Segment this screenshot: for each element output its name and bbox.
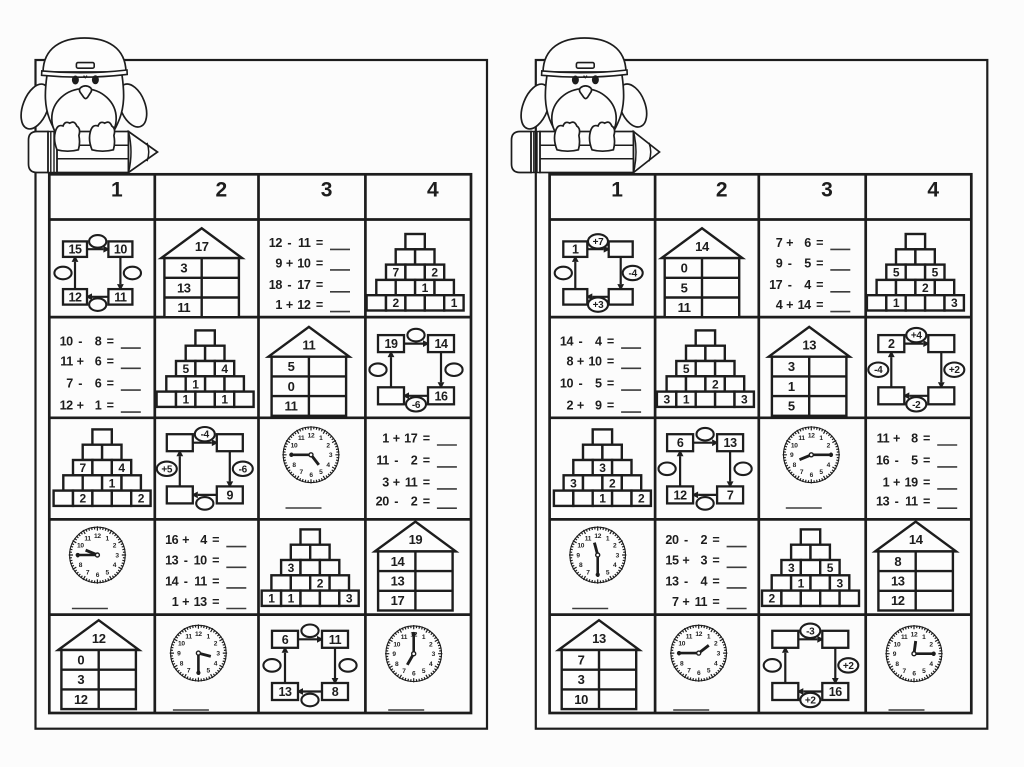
svg-text:11: 11 <box>177 300 190 315</box>
svg-text:-4: -4 <box>629 269 638 280</box>
svg-text:-: - <box>684 574 688 588</box>
svg-text:10: 10 <box>574 692 588 707</box>
svg-text:1: 1 <box>382 431 389 445</box>
svg-text:5: 5 <box>681 280 688 295</box>
svg-text:1: 1 <box>172 595 179 609</box>
svg-text:+: + <box>182 533 189 547</box>
svg-text:12: 12 <box>594 533 601 540</box>
svg-text:10: 10 <box>194 554 208 568</box>
svg-text:12: 12 <box>74 692 88 707</box>
svg-text:=: = <box>423 475 430 489</box>
svg-text:5: 5 <box>595 377 602 391</box>
svg-text:19: 19 <box>409 532 423 547</box>
svg-text:14: 14 <box>798 298 812 312</box>
svg-text:12: 12 <box>308 433 315 440</box>
svg-text:10: 10 <box>560 377 574 391</box>
svg-text:-6: -6 <box>239 464 248 475</box>
svg-text:2: 2 <box>700 533 707 547</box>
svg-text:5: 5 <box>683 362 690 376</box>
svg-text:11: 11 <box>285 399 298 414</box>
svg-text:2: 2 <box>716 179 728 202</box>
svg-text:2: 2 <box>888 337 895 351</box>
svg-text:=: = <box>107 355 114 369</box>
svg-text:-6: -6 <box>412 400 421 411</box>
svg-text:-: - <box>78 335 82 349</box>
svg-text:+2: +2 <box>843 661 855 672</box>
svg-text:10: 10 <box>894 641 901 648</box>
svg-text:14: 14 <box>434 337 448 351</box>
svg-text:10: 10 <box>291 442 298 449</box>
svg-text:-: - <box>895 495 899 509</box>
svg-text:1: 1 <box>611 179 623 202</box>
svg-text:6: 6 <box>804 236 811 250</box>
svg-text:11: 11 <box>376 453 389 467</box>
svg-text:=: = <box>423 453 430 467</box>
svg-text:5: 5 <box>183 362 190 376</box>
svg-text:4: 4 <box>804 278 811 292</box>
svg-text:+: + <box>577 355 584 369</box>
svg-text:4: 4 <box>776 298 783 312</box>
svg-text:=: = <box>423 495 430 509</box>
svg-text:3: 3 <box>382 475 389 489</box>
svg-text:=: = <box>712 595 719 609</box>
svg-text:6: 6 <box>282 633 289 647</box>
svg-text:1: 1 <box>572 243 579 257</box>
svg-text:13: 13 <box>165 554 179 568</box>
svg-text:11: 11 <box>877 431 890 445</box>
svg-text:1: 1 <box>883 475 890 489</box>
svg-text:1: 1 <box>268 592 275 606</box>
svg-text:=: = <box>316 278 323 292</box>
svg-text:17: 17 <box>404 431 418 445</box>
svg-text:+: + <box>893 475 900 489</box>
svg-text:=: = <box>212 595 219 609</box>
svg-text:6: 6 <box>95 355 102 369</box>
svg-text:-: - <box>684 533 688 547</box>
svg-text:11: 11 <box>405 475 418 489</box>
svg-text:=: = <box>316 298 323 312</box>
svg-text:3: 3 <box>836 576 843 590</box>
svg-text:=: = <box>712 574 719 588</box>
svg-text:3: 3 <box>77 672 84 687</box>
svg-text:=: = <box>607 355 614 369</box>
svg-text:-: - <box>287 236 291 250</box>
svg-text:2: 2 <box>566 399 573 413</box>
svg-text:3: 3 <box>288 561 295 575</box>
svg-text:2: 2 <box>922 281 929 295</box>
svg-text:+: + <box>682 554 689 568</box>
svg-text:=: = <box>816 298 823 312</box>
svg-text:13: 13 <box>592 631 606 646</box>
svg-text:-: - <box>287 278 291 292</box>
svg-text:+: + <box>786 236 793 250</box>
svg-text:14: 14 <box>909 532 924 547</box>
svg-text:10: 10 <box>114 243 128 257</box>
svg-text:+: + <box>893 431 900 445</box>
svg-text:6: 6 <box>95 377 102 391</box>
svg-text:16: 16 <box>829 685 843 699</box>
svg-text:0: 0 <box>77 653 84 668</box>
svg-text:1: 1 <box>893 296 900 310</box>
svg-text:=: = <box>816 256 823 270</box>
svg-text:11: 11 <box>695 595 708 609</box>
svg-text:16: 16 <box>165 533 179 547</box>
svg-text:16: 16 <box>434 389 448 403</box>
svg-text:1: 1 <box>275 298 282 312</box>
svg-text:=: = <box>316 256 323 270</box>
svg-text:3: 3 <box>741 393 748 407</box>
svg-text:11: 11 <box>905 495 918 509</box>
svg-text:4: 4 <box>927 179 939 202</box>
svg-text:2: 2 <box>769 592 776 606</box>
svg-text:=: = <box>212 574 219 588</box>
svg-text:17: 17 <box>297 278 311 292</box>
svg-text:14: 14 <box>391 554 406 569</box>
svg-text:-: - <box>579 335 583 349</box>
svg-text:2: 2 <box>393 296 400 310</box>
svg-text:+: + <box>182 595 189 609</box>
svg-text:10: 10 <box>577 543 584 550</box>
svg-text:2: 2 <box>411 453 418 467</box>
svg-text:-: - <box>895 453 899 467</box>
svg-text:2: 2 <box>80 492 87 506</box>
svg-text:7: 7 <box>727 488 734 502</box>
svg-text:3: 3 <box>700 554 707 568</box>
svg-text:+2: +2 <box>805 696 817 707</box>
svg-text:11: 11 <box>114 290 127 304</box>
svg-text:2: 2 <box>411 495 418 509</box>
svg-text:7: 7 <box>672 595 679 609</box>
svg-text:8: 8 <box>332 685 339 699</box>
svg-text:=: = <box>607 335 614 349</box>
svg-text:12: 12 <box>695 631 702 638</box>
svg-text:0: 0 <box>288 379 295 394</box>
svg-text:5: 5 <box>932 266 939 280</box>
svg-text:9: 9 <box>776 256 783 270</box>
svg-text:12: 12 <box>68 290 82 304</box>
svg-text:14: 14 <box>165 574 179 588</box>
svg-text:1: 1 <box>192 377 199 391</box>
svg-text:11: 11 <box>302 338 315 353</box>
svg-text:11: 11 <box>585 535 592 542</box>
svg-text:10: 10 <box>678 641 685 648</box>
svg-text:5: 5 <box>827 561 834 575</box>
svg-text:13: 13 <box>391 574 405 589</box>
svg-text:=: = <box>107 335 114 349</box>
svg-text:7: 7 <box>578 653 585 668</box>
svg-text:7: 7 <box>776 236 783 250</box>
svg-text:14: 14 <box>560 335 574 349</box>
svg-text:9: 9 <box>275 256 282 270</box>
svg-text:1: 1 <box>798 576 805 590</box>
svg-text:8: 8 <box>566 355 573 369</box>
svg-text:4: 4 <box>700 574 707 588</box>
svg-text:+2: +2 <box>949 365 961 376</box>
svg-text:2: 2 <box>638 492 645 506</box>
svg-text:11: 11 <box>60 355 73 369</box>
svg-text:10: 10 <box>77 543 84 550</box>
svg-text:3: 3 <box>663 393 670 407</box>
svg-text:1: 1 <box>788 379 795 394</box>
svg-text:2: 2 <box>317 576 324 590</box>
svg-text:-: - <box>579 377 583 391</box>
svg-text:14: 14 <box>695 239 710 254</box>
svg-text:11: 11 <box>401 634 408 641</box>
svg-text:3: 3 <box>578 672 585 687</box>
svg-text:13: 13 <box>724 436 738 450</box>
svg-text:13: 13 <box>194 595 208 609</box>
svg-text:=: = <box>212 533 219 547</box>
svg-text:+: + <box>286 298 293 312</box>
svg-text:10: 10 <box>178 641 185 648</box>
svg-text:4: 4 <box>118 461 125 475</box>
svg-text:19: 19 <box>384 337 398 351</box>
svg-text:10: 10 <box>588 355 602 369</box>
svg-text:11: 11 <box>84 535 91 542</box>
svg-text:1: 1 <box>109 476 116 490</box>
svg-text:5: 5 <box>788 399 795 414</box>
svg-text:3: 3 <box>951 296 958 310</box>
svg-text:6: 6 <box>677 436 684 450</box>
svg-text:5: 5 <box>804 256 811 270</box>
svg-text:4: 4 <box>200 533 207 547</box>
svg-text:12: 12 <box>911 632 918 639</box>
svg-text:+5: +5 <box>161 464 173 475</box>
svg-text:4: 4 <box>595 335 602 349</box>
svg-text:5: 5 <box>911 453 918 467</box>
svg-text:+: + <box>77 355 84 369</box>
svg-text:12: 12 <box>808 433 815 440</box>
svg-text:-: - <box>78 377 82 391</box>
svg-text:+4: +4 <box>911 331 923 342</box>
svg-text:+: + <box>786 298 793 312</box>
svg-text:19: 19 <box>904 475 918 489</box>
svg-text:20: 20 <box>376 495 390 509</box>
svg-text:=: = <box>923 453 930 467</box>
svg-text:+: + <box>577 399 584 413</box>
svg-text:3: 3 <box>346 592 353 606</box>
svg-text:7: 7 <box>80 461 87 475</box>
svg-text:7: 7 <box>393 266 400 280</box>
svg-text:15: 15 <box>665 554 679 568</box>
svg-text:2: 2 <box>609 476 616 490</box>
svg-text:9: 9 <box>227 488 234 502</box>
svg-text:=: = <box>107 399 114 413</box>
svg-text:8: 8 <box>894 554 901 569</box>
svg-text:1: 1 <box>599 492 606 506</box>
svg-text:3: 3 <box>570 476 577 490</box>
svg-text:11: 11 <box>185 634 192 641</box>
svg-text:=: = <box>107 377 114 391</box>
svg-text:+7: +7 <box>593 237 605 248</box>
svg-text:=: = <box>607 377 614 391</box>
svg-text:9: 9 <box>595 399 602 413</box>
svg-text:=: = <box>712 533 719 547</box>
svg-text:5: 5 <box>893 266 900 280</box>
svg-text:1: 1 <box>95 399 102 413</box>
svg-text:-4: -4 <box>201 430 210 441</box>
svg-text:1: 1 <box>221 393 228 407</box>
svg-text:-: - <box>788 256 792 270</box>
svg-text:13: 13 <box>665 574 679 588</box>
svg-text:8: 8 <box>95 335 102 349</box>
svg-text:12: 12 <box>195 631 202 638</box>
svg-text:+3: +3 <box>593 300 605 311</box>
svg-text:3: 3 <box>321 179 333 202</box>
svg-text:1: 1 <box>451 296 458 310</box>
svg-text:1: 1 <box>111 179 123 202</box>
svg-text:-: - <box>394 453 398 467</box>
svg-text:+: + <box>286 256 293 270</box>
svg-text:12: 12 <box>60 399 74 413</box>
svg-text:11: 11 <box>901 634 908 641</box>
svg-text:20: 20 <box>665 533 679 547</box>
svg-text:-: - <box>788 278 792 292</box>
svg-text:18: 18 <box>269 278 283 292</box>
svg-text:13: 13 <box>278 685 292 699</box>
svg-text:8: 8 <box>911 431 918 445</box>
svg-text:12: 12 <box>94 533 101 540</box>
svg-text:10: 10 <box>297 256 311 270</box>
svg-text:10: 10 <box>791 442 798 449</box>
svg-text:3: 3 <box>180 261 187 276</box>
svg-text:11: 11 <box>798 435 805 442</box>
svg-text:=: = <box>923 475 930 489</box>
svg-text:12: 12 <box>269 236 283 250</box>
svg-text:=: = <box>816 278 823 292</box>
svg-text:11: 11 <box>329 633 342 647</box>
svg-text:2: 2 <box>138 492 145 506</box>
svg-text:+: + <box>77 399 84 413</box>
svg-text:-: - <box>184 574 188 588</box>
svg-text:+: + <box>682 595 689 609</box>
svg-text:-: - <box>184 554 188 568</box>
svg-text:=: = <box>212 554 219 568</box>
svg-text:=: = <box>923 431 930 445</box>
svg-text:13: 13 <box>802 338 816 353</box>
svg-text:3: 3 <box>788 359 795 374</box>
svg-text:4: 4 <box>427 179 439 202</box>
svg-text:11: 11 <box>298 435 305 442</box>
svg-text:10: 10 <box>393 641 400 648</box>
svg-text:-2: -2 <box>912 400 921 411</box>
svg-text:15: 15 <box>68 243 82 257</box>
svg-text:1: 1 <box>683 393 690 407</box>
svg-text:12: 12 <box>297 298 311 312</box>
svg-text:5: 5 <box>288 359 295 374</box>
svg-text:17: 17 <box>769 278 783 292</box>
svg-text:12: 12 <box>92 631 106 646</box>
svg-text:2: 2 <box>712 377 719 391</box>
svg-text:+: + <box>393 431 400 445</box>
svg-text:=: = <box>316 236 323 250</box>
svg-text:13: 13 <box>891 574 905 589</box>
svg-text:=: = <box>607 399 614 413</box>
svg-text:12: 12 <box>891 593 905 608</box>
svg-text:1: 1 <box>183 393 190 407</box>
svg-text:=: = <box>423 431 430 445</box>
svg-text:-3: -3 <box>806 626 815 637</box>
svg-text:17: 17 <box>195 239 209 254</box>
svg-text:-4: -4 <box>874 365 883 376</box>
svg-text:4: 4 <box>221 362 228 376</box>
svg-text:3: 3 <box>821 179 833 202</box>
svg-text:3: 3 <box>599 461 606 475</box>
svg-text:11: 11 <box>194 574 207 588</box>
svg-text:13: 13 <box>177 280 191 295</box>
svg-text:2: 2 <box>215 179 227 202</box>
svg-text:12: 12 <box>674 488 688 502</box>
svg-text:=: = <box>923 495 930 509</box>
svg-text:-: - <box>394 495 398 509</box>
svg-text:11: 11 <box>298 236 311 250</box>
svg-text:11: 11 <box>686 634 693 641</box>
svg-text:1: 1 <box>288 592 295 606</box>
svg-text:1: 1 <box>422 281 429 295</box>
svg-text:11: 11 <box>678 300 691 315</box>
svg-text:0: 0 <box>681 261 688 276</box>
svg-text:17: 17 <box>391 593 405 608</box>
svg-text:+: + <box>393 475 400 489</box>
svg-text:10: 10 <box>60 335 74 349</box>
svg-text:16: 16 <box>876 453 890 467</box>
svg-text:=: = <box>712 554 719 568</box>
svg-text:7: 7 <box>66 377 73 391</box>
svg-text:=: = <box>816 236 823 250</box>
svg-text:13: 13 <box>876 495 890 509</box>
svg-text:2: 2 <box>431 266 438 280</box>
svg-text:3: 3 <box>788 561 795 575</box>
